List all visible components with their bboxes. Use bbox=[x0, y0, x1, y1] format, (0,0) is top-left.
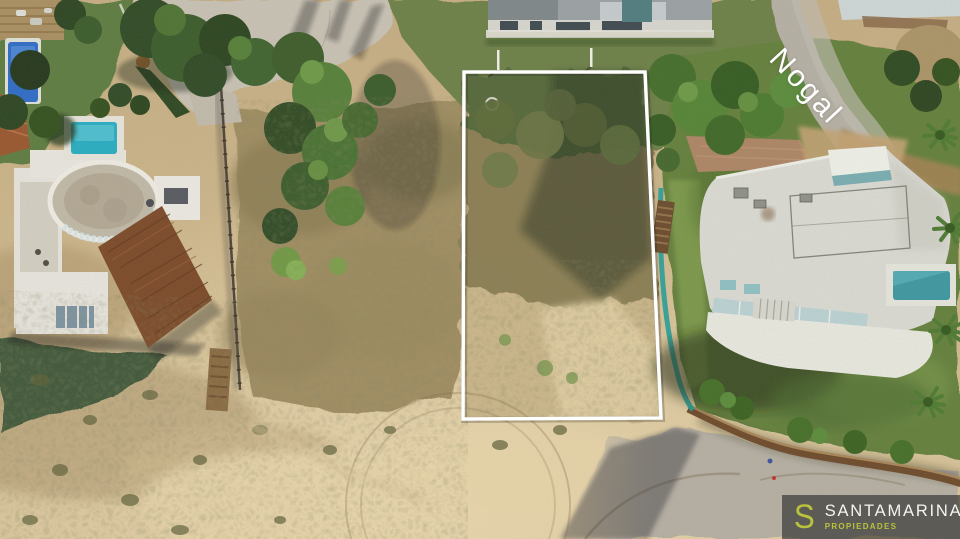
brand-watermark: S SANTAMARINA PROPIEDADES bbox=[782, 495, 960, 539]
aerial-photo: Nogal S SANTAMARINA PROPIEDADES bbox=[0, 0, 960, 539]
brand-text: SANTAMARINA PROPIEDADES bbox=[825, 503, 960, 531]
brand-tagline: PROPIEDADES bbox=[825, 522, 960, 531]
brand-logo-icon: S bbox=[794, 499, 815, 535]
brand-name: SANTAMARINA bbox=[825, 503, 960, 520]
